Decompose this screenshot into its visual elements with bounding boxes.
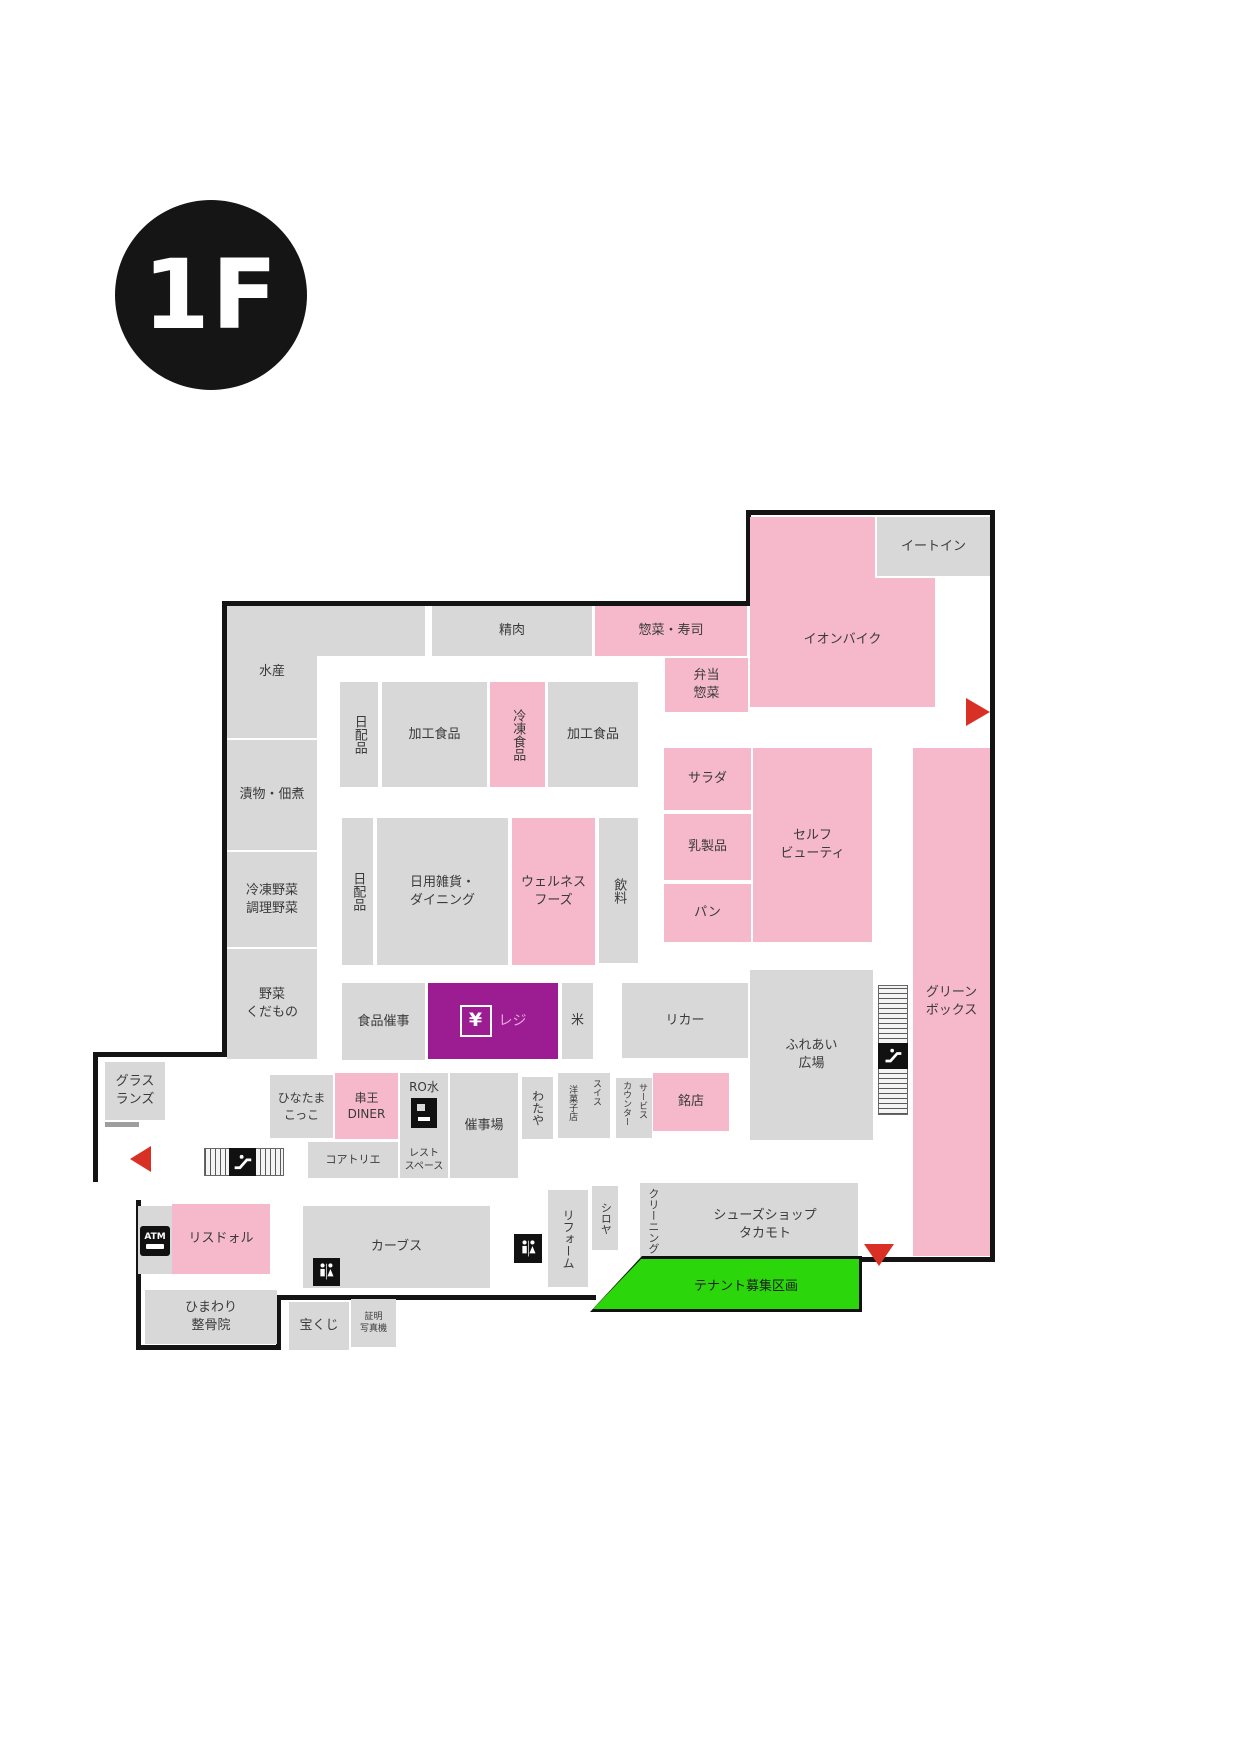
cleaning-label: クリーニング [645, 1188, 660, 1254]
area-glass-lands: グラス ランズ [105, 1062, 165, 1120]
map-boundary [746, 510, 995, 515]
tenant-recruit-block: テナント募集区画 [590, 1256, 862, 1312]
water-dispenser-icon [411, 1098, 437, 1128]
map-boundary [276, 1295, 596, 1300]
map-boundary [136, 1200, 141, 1350]
area-self-beauty: セルフ ビューティ [753, 748, 872, 942]
area-green-box: グリーン ボックス [913, 748, 990, 1256]
area-beverages: 飲料 [599, 818, 638, 963]
entrance-arrow-right [966, 698, 990, 726]
area-lisdor: リスドォル [172, 1204, 270, 1274]
service-counter-col1: サービス [636, 1083, 648, 1119]
area-produce: 野菜 くだもの [227, 949, 317, 1059]
area-rice: 米 [562, 983, 593, 1059]
yen-icon: ¥ [460, 1005, 492, 1037]
escalator-icon [229, 1148, 256, 1176]
restroom-icon [313, 1258, 340, 1286]
floor-badge: 1F [115, 200, 307, 390]
area-meiten: 銘店 [653, 1073, 729, 1131]
area-wellness-foods: ウェルネス フーズ [512, 818, 595, 965]
area-ro-water: RO水 [400, 1073, 448, 1144]
area-pickles: 漬物・佃煮 [227, 740, 317, 850]
area-seafood: 水産 [227, 606, 317, 738]
ro-water-label: RO水 [409, 1079, 439, 1095]
area-housewares-dining: 日用雑貨・ ダイニング [377, 818, 508, 965]
area-food-event: 食品催事 [342, 983, 425, 1060]
atm-label: ATM [144, 1233, 165, 1242]
area-deli-sushi: 惣菜・寿司 [595, 606, 747, 656]
area-swiss-patisserie: スイス 洋菓子店 [558, 1073, 610, 1138]
area-frozen-vegetables: 冷凍野菜 調理野菜 [227, 852, 317, 947]
area-wataya: わたや [522, 1077, 553, 1139]
shoes-takamoto-label: シューズショップ タカモト [680, 1207, 850, 1242]
area-bento-deli: 弁当 惣菜 [665, 658, 748, 712]
area-service-counter: サービス カウンター [616, 1078, 652, 1138]
service-counter-col2: カウンター [620, 1081, 632, 1126]
area-processed-foods-1: 加工食品 [382, 682, 487, 787]
atm-slot [146, 1244, 164, 1249]
area-himawari-seikotsuin: ひまわり 整骨院 [145, 1290, 277, 1344]
area-takarakuji: 宝くじ [289, 1302, 349, 1350]
area-reform: リフォーム [548, 1190, 588, 1287]
map-boundary [990, 510, 995, 1262]
area-id-photo-booth: 証明 写真機 [351, 1299, 396, 1347]
area-rest-space: レスト スペース [400, 1142, 448, 1178]
area-koatorie: コアトリエ [308, 1142, 398, 1178]
area-event-hall: 催事場 [450, 1073, 518, 1178]
area-daily-foods-1: 日配品 [340, 682, 378, 787]
area-aeon-bike-label: イオンバイク [760, 628, 925, 647]
area-liquor: リカー [622, 983, 748, 1058]
area-dairy: 乳製品 [664, 814, 751, 880]
map-boundary [136, 1345, 281, 1350]
area-fureai-plaza: ふれあい 広場 [750, 970, 873, 1140]
map-boundary [93, 1052, 98, 1182]
area-processed-foods-2: 加工食品 [548, 682, 638, 787]
floor-map-1f: 1F 水産 精肉 惣菜・寿司 弁当 惣菜 イオンバイク イートイン 漬物・佃煮 … [0, 0, 1240, 1755]
step-shadow [105, 1122, 139, 1127]
area-bread: パン [664, 884, 751, 942]
map-boundary [93, 1052, 227, 1057]
tenant-recruit-label: テナント募集区画 [630, 1256, 862, 1312]
atm-icon: ATM [140, 1226, 170, 1256]
map-boundary [746, 510, 751, 606]
area-kushio-diner: 串王 DINER [335, 1073, 398, 1139]
area-frozen-foods: 冷凍食品 [490, 682, 545, 787]
entrance-arrow-down [864, 1244, 894, 1266]
area-cashier: ¥ レジ [428, 983, 558, 1059]
area-daily-foods-2: 日配品 [342, 818, 373, 965]
area-shiroya: シロヤ [592, 1186, 618, 1250]
area-eat-in: イートイン [877, 517, 990, 576]
escalator-icon [878, 1043, 908, 1069]
entrance-arrow-left [130, 1146, 151, 1172]
area-hinatama-kokko: ひなたま こっこ [270, 1075, 333, 1138]
swiss-label-col1: スイス [590, 1079, 602, 1106]
area-meat: 精肉 [432, 606, 592, 656]
cashier-label: レジ [499, 1012, 527, 1031]
area-aeon-bike [750, 517, 875, 707]
area-salad: サラダ [664, 748, 751, 810]
swiss-label-col2: 洋菓子店 [566, 1085, 578, 1121]
restroom-icon [514, 1234, 542, 1263]
